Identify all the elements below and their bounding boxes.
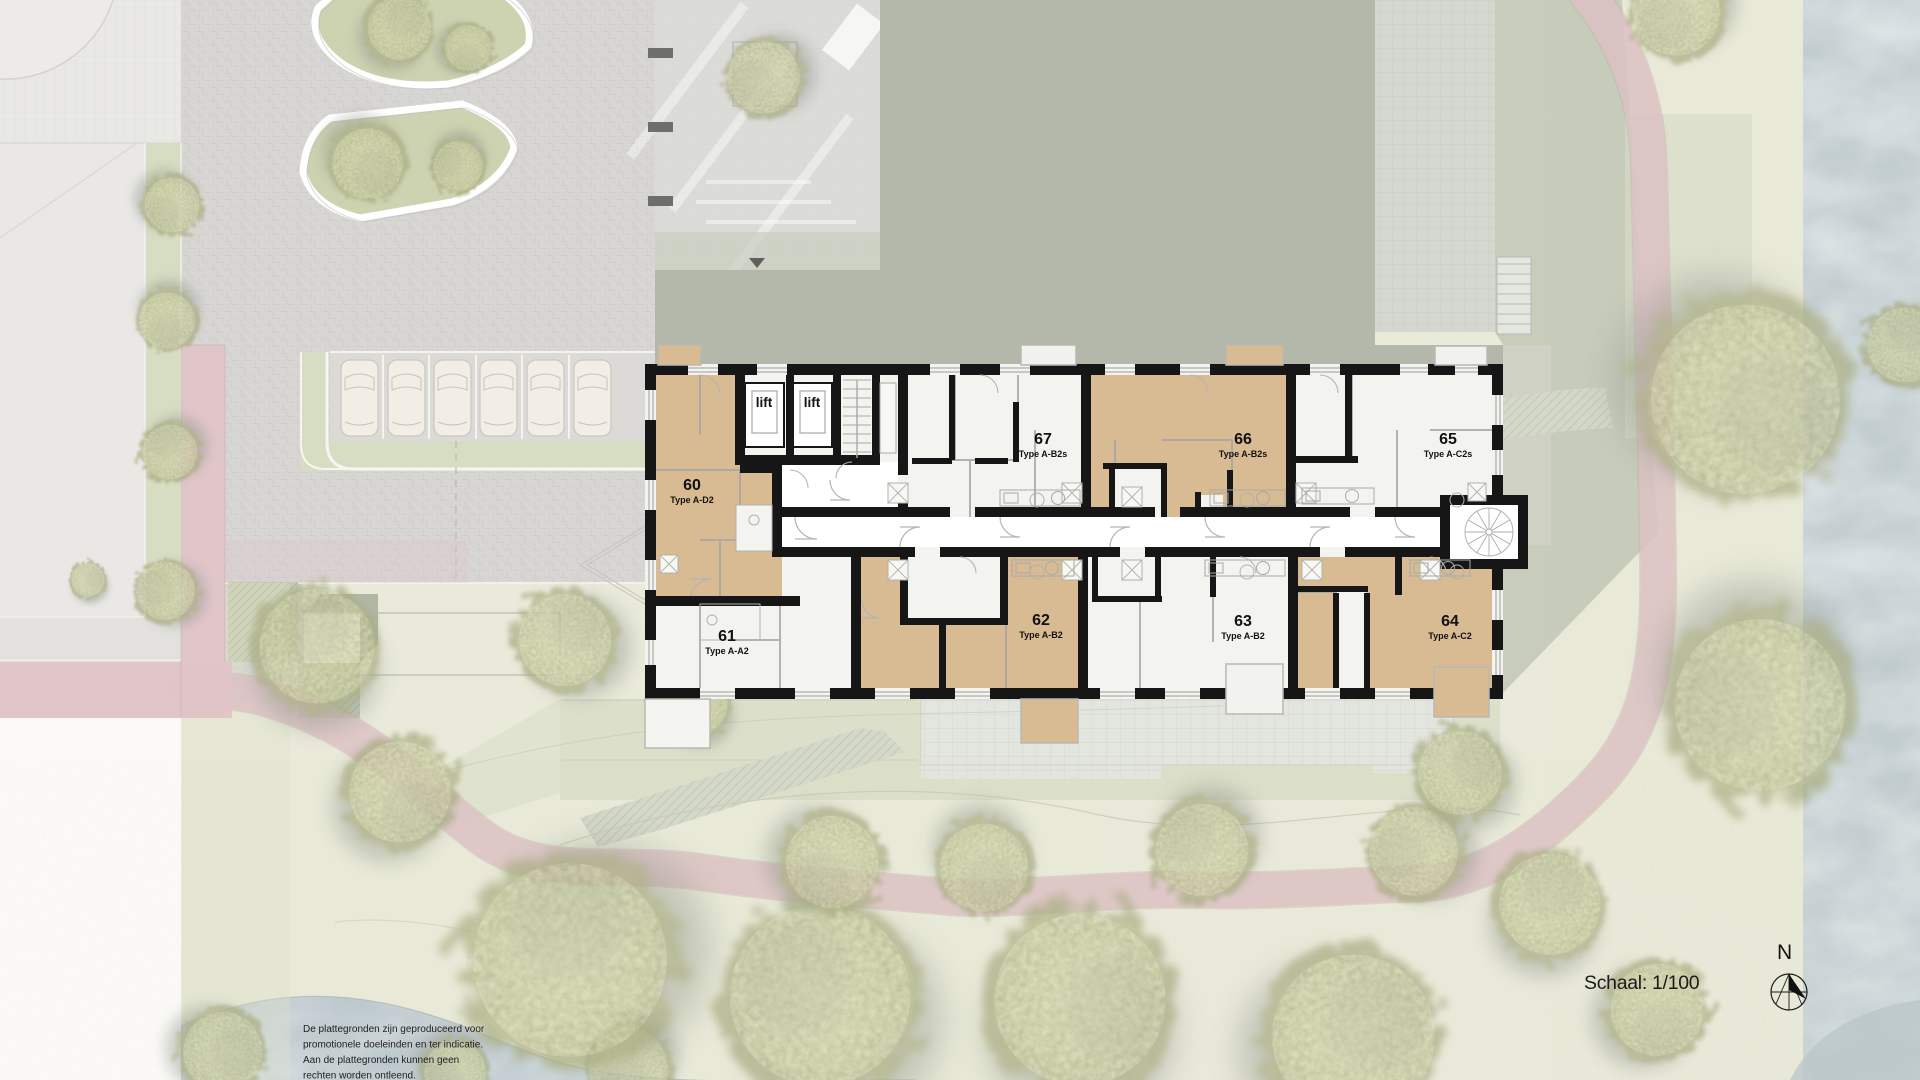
svg-text:lift: lift (804, 395, 821, 410)
svg-text:Type A-A2: Type A-A2 (705, 646, 749, 656)
svg-text:Type A-B2: Type A-B2 (1019, 630, 1063, 640)
svg-text:65: 65 (1439, 431, 1457, 448)
svg-text:Type A-B2: Type A-B2 (1221, 631, 1265, 641)
svg-text:Aan de plattegronden kunnen ge: Aan de plattegronden kunnen geen (303, 1055, 459, 1066)
svg-text:promotionele doeleinden en ter: promotionele doeleinden en ter indicatie… (303, 1040, 483, 1051)
svg-text:Type A-D2: Type A-D2 (670, 495, 714, 505)
svg-text:60: 60 (683, 477, 701, 494)
svg-text:67: 67 (1034, 431, 1052, 448)
svg-text:Type A-B2s: Type A-B2s (1019, 449, 1068, 459)
svg-text:64: 64 (1441, 613, 1459, 630)
svg-text:Type A-B2s: Type A-B2s (1219, 449, 1268, 459)
svg-text:lift: lift (756, 395, 773, 410)
svg-text:De plattegronden zijn geproduc: De plattegronden zijn geproduceerd voor (303, 1024, 485, 1035)
svg-text:Schaal: 1/100: Schaal: 1/100 (1584, 972, 1700, 994)
svg-text:N: N (1777, 941, 1792, 964)
svg-text:rechten worden ontleend.: rechten worden ontleend. (303, 1071, 416, 1080)
svg-text:62: 62 (1032, 612, 1050, 629)
svg-text:Type A-C2: Type A-C2 (1428, 631, 1472, 641)
svg-text:63: 63 (1234, 613, 1252, 630)
svg-text:61: 61 (718, 628, 736, 645)
svg-text:66: 66 (1234, 431, 1252, 448)
svg-text:Type A-C2s: Type A-C2s (1424, 449, 1473, 459)
